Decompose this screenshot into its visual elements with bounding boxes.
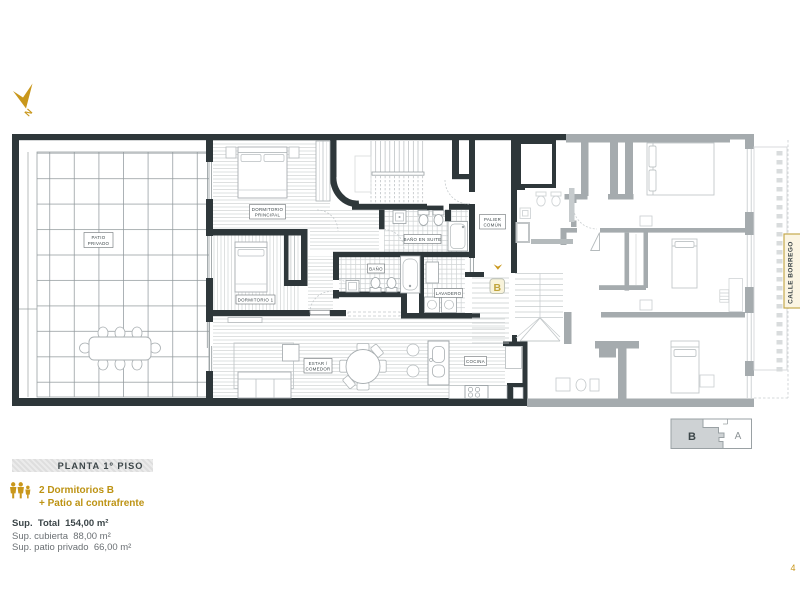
svg-text:A: A bbox=[735, 431, 742, 442]
svg-text:COCINA: COCINA bbox=[466, 359, 485, 364]
svg-text:BAÑO EN SUITE: BAÑO EN SUITE bbox=[404, 237, 442, 242]
svg-text:B: B bbox=[688, 431, 696, 443]
svg-text:PALIER: PALIER bbox=[484, 217, 501, 222]
svg-text:COMEDOR: COMEDOR bbox=[305, 367, 330, 372]
svg-text:ESTAR /: ESTAR / bbox=[309, 361, 328, 366]
svg-text:PATIO: PATIO bbox=[91, 235, 105, 240]
svg-text:COMÚN: COMÚN bbox=[483, 223, 501, 228]
svg-text:PRINCIPAL: PRINCIPAL bbox=[255, 213, 281, 218]
svg-text:B: B bbox=[494, 282, 502, 294]
svg-text:CALLE BORREGO: CALLE BORREGO bbox=[788, 241, 795, 304]
svg-text:BAÑO: BAÑO bbox=[369, 267, 383, 272]
svg-text:LAVADERO: LAVADERO bbox=[436, 291, 462, 296]
svg-text:PRIVADO: PRIVADO bbox=[88, 241, 110, 246]
svg-text:N: N bbox=[23, 107, 35, 119]
svg-text:DORMITORIO 1: DORMITORIO 1 bbox=[238, 298, 274, 303]
svg-text:4: 4 bbox=[790, 563, 795, 573]
svg-text:DORMITORIO: DORMITORIO bbox=[252, 207, 284, 212]
